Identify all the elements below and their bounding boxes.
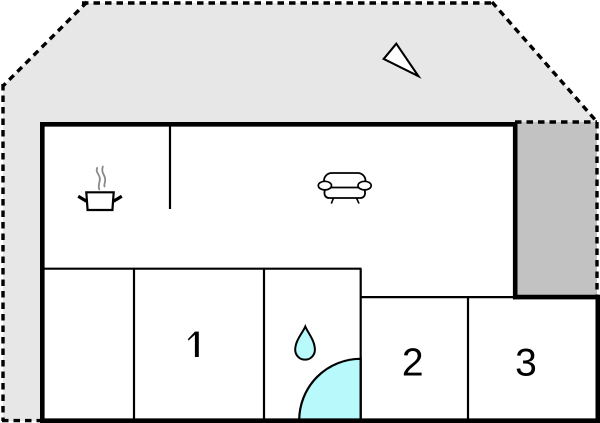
svg-text:3: 3 <box>515 341 537 384</box>
svg-text:2: 2 <box>402 341 424 384</box>
